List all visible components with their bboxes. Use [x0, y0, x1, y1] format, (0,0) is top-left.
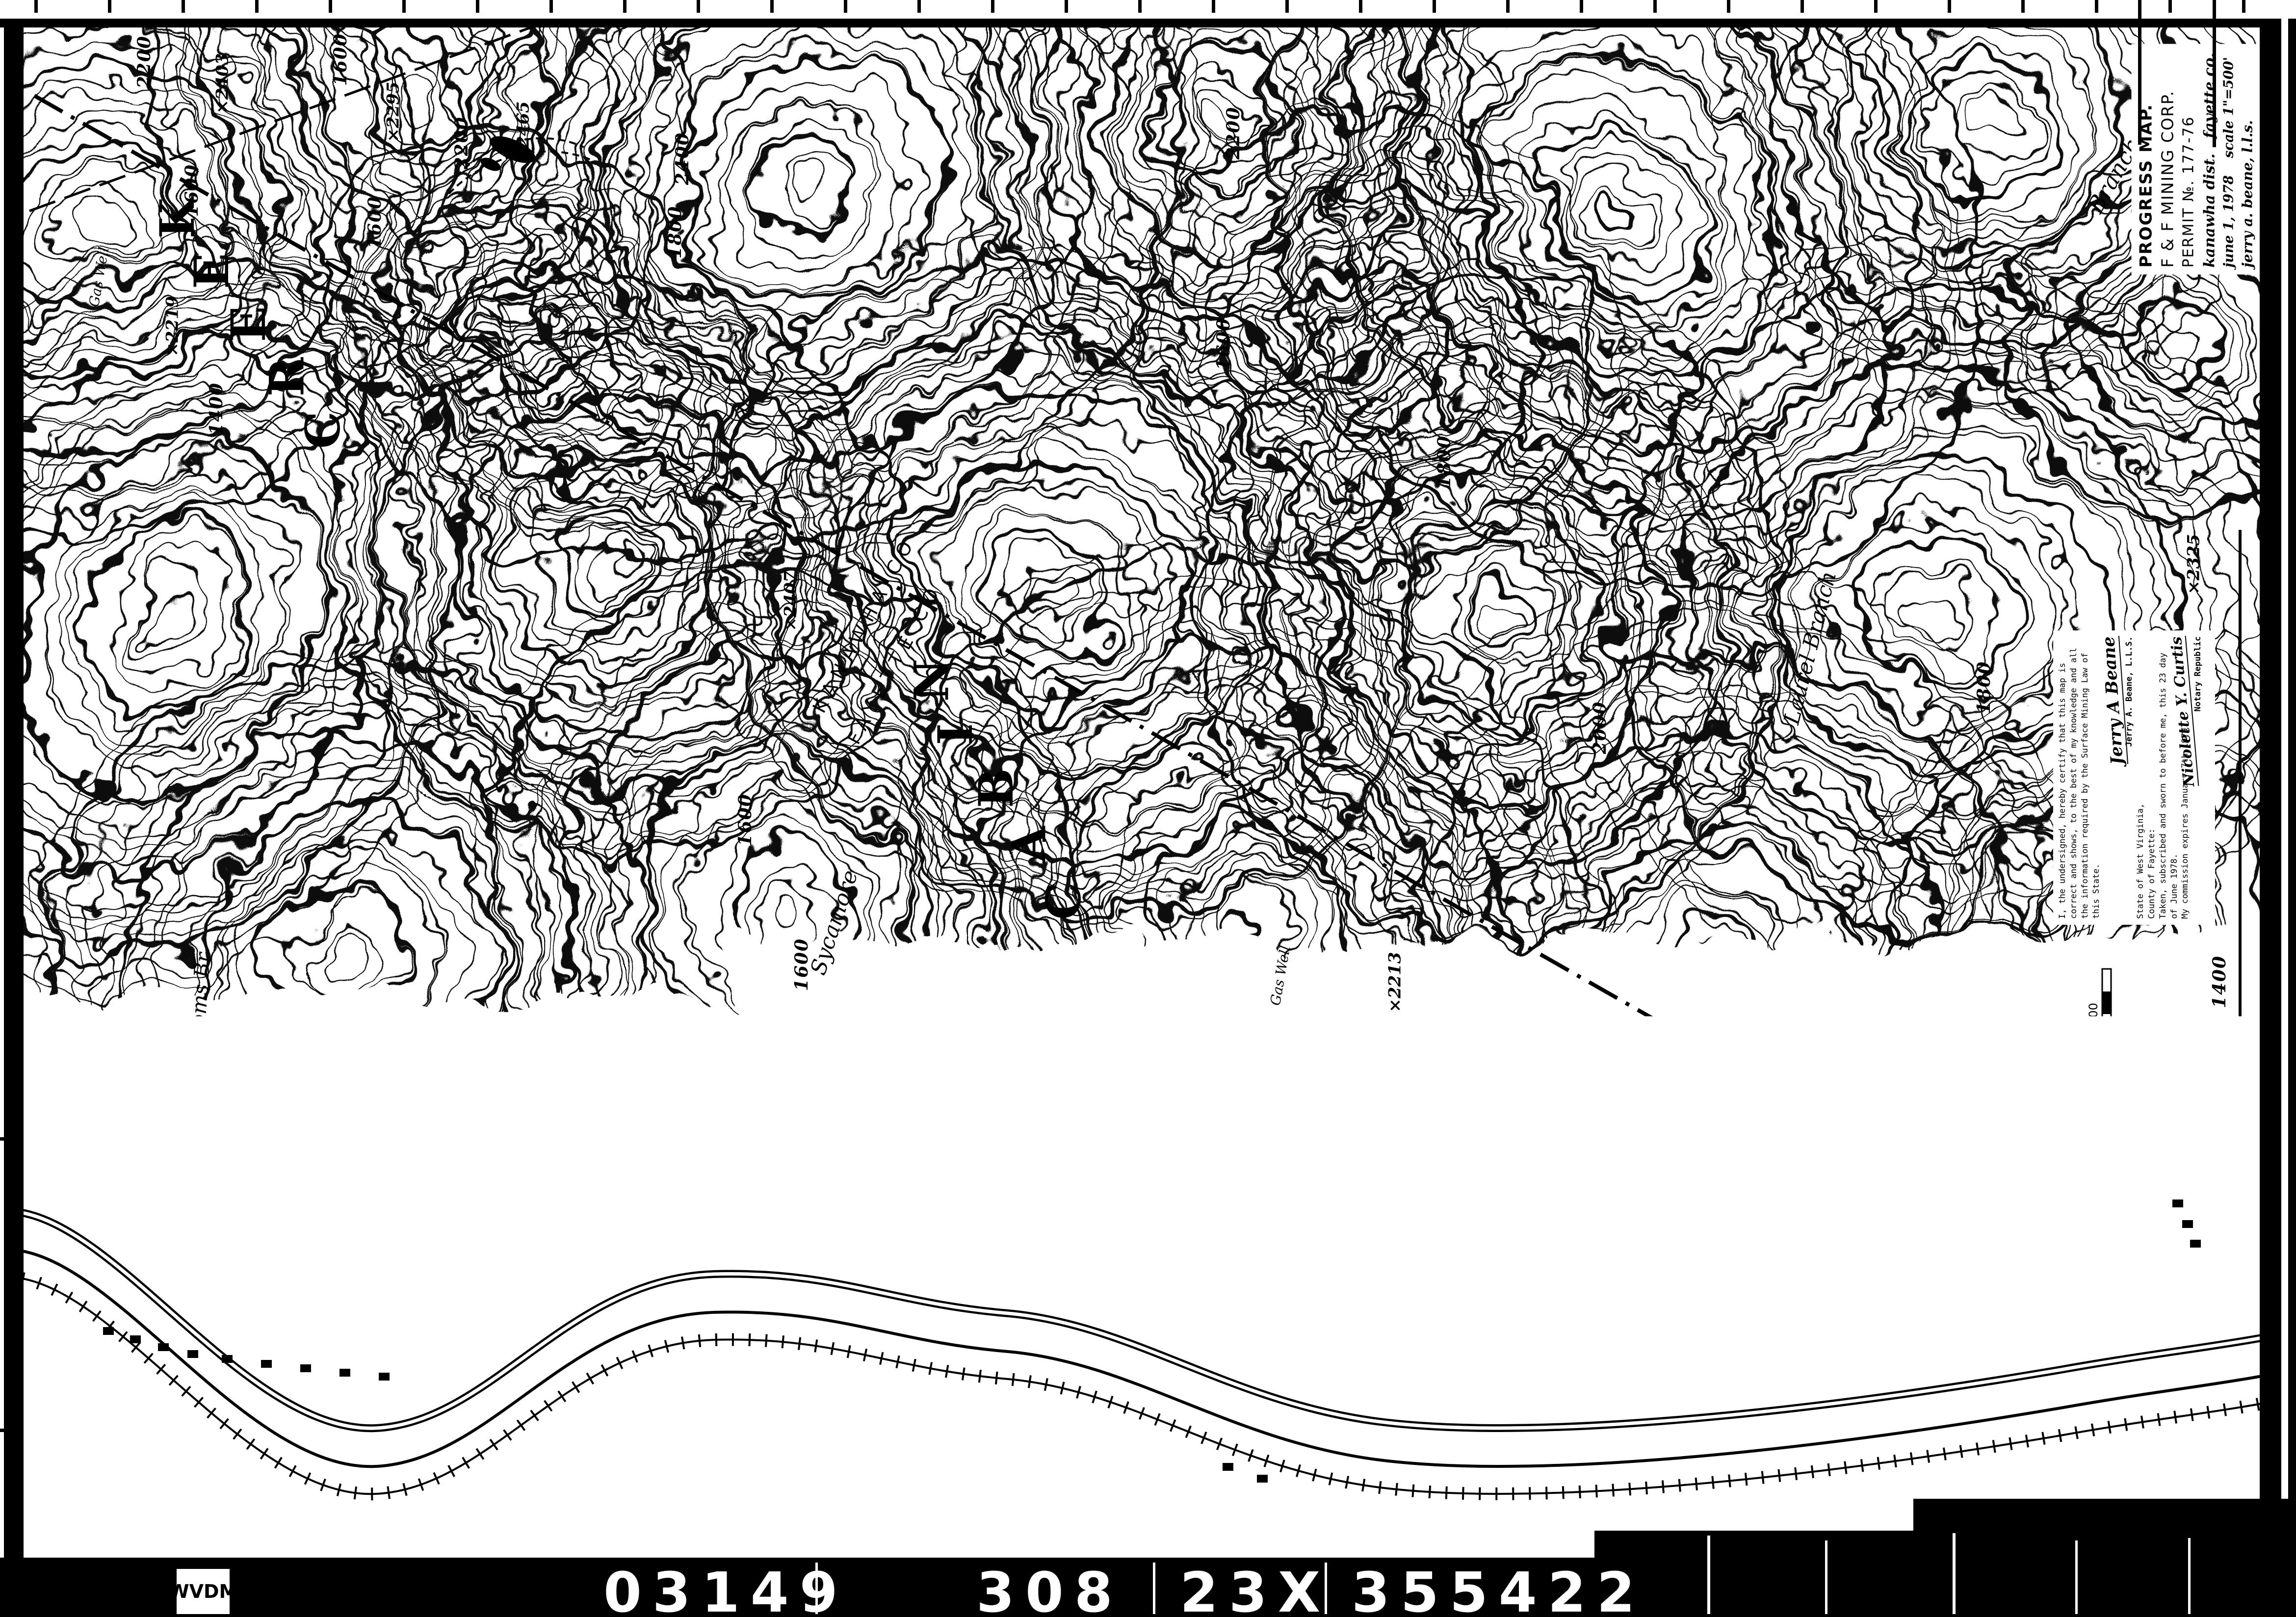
location-town-montgomery: Montgomery — [1388, 1363, 1398, 1412]
spot-elevation-value: 2213 — [1385, 952, 1405, 998]
spot-elevation: ×2295 — [384, 81, 403, 142]
district-name: kanawha dist. — [2201, 154, 2218, 268]
map-scale: scale 1"=500' — [2221, 57, 2237, 158]
contour-label: 2200 — [1223, 106, 1244, 159]
scale-bar-block: 0 500 1000 1500 Scale, feet — [2087, 954, 2133, 1212]
company-name: F & F MINING CORP. — [2158, 51, 2177, 268]
ruler-tick — [991, 0, 994, 13]
location-town-mahan: Mahan — [1469, 1327, 1478, 1351]
ruler-tick — [770, 0, 774, 13]
legend-row-value: 1.00 ac. — [1811, 1246, 1826, 1305]
contour-label: 1200 — [845, 1429, 866, 1482]
legend-row-value: 7.43 ac. — [1773, 1267, 1787, 1327]
ruler-tick — [1800, 0, 1804, 13]
notary-sworn-line: Taken, subscribed and sworn to before me… — [2158, 636, 2169, 919]
paint-creek-line — [1467, 1340, 1546, 1409]
ridge-name-letter: B — [968, 768, 1024, 808]
scale-tick-500: 500 — [2087, 1125, 2100, 1148]
contour-label: 1600 — [791, 938, 812, 991]
legend-row-value: 2080 lin.ft. — [1713, 1289, 1727, 1374]
film-edge-ruler — [0, 0, 2296, 19]
legend-row-value: 4.71 ac. — [1792, 1262, 1806, 1322]
spot-elevation-value: 2407 — [781, 571, 801, 617]
certification-text: I, the undersigned, hereby certify that … — [2057, 644, 2102, 919]
scan-shadow — [1913, 1499, 2296, 1533]
location-map-title: LOCATION MAP — [1324, 1338, 1355, 1571]
ridge-name-letter: E — [184, 253, 239, 289]
ridge-name-letter: C — [295, 411, 351, 448]
coal-line-symbol — [1700, 1351, 1705, 1388]
contour-label: 1600 — [182, 164, 202, 217]
legend-row-label: DISTURBED AREA TO 5-3-78 — [1773, 1367, 1787, 1552]
notary-state-line: State of West Virginia, — [2135, 636, 2146, 919]
permit-number: PERMIT №. 177-76 — [2180, 51, 2197, 268]
regraded-area-symbol — [1792, 1330, 1803, 1358]
legend-row-label: COAL — [1694, 1391, 1708, 1553]
certification-block: I, the undersigned, hereby certify that … — [2053, 630, 2215, 925]
benchmark-label: 802 — [53, 1397, 71, 1428]
quadrangle-note: Quadrangle — [1565, 1326, 1574, 1369]
ruler-tick — [623, 0, 626, 13]
film-scratch — [2075, 1540, 2078, 1614]
sheet-edge — [2281, 19, 2288, 1617]
contour-label: 1400 — [206, 382, 227, 435]
scanned-progress-map-sheet: C A B I N C R E E K KANAWHA CO FAYETTE C… — [0, 0, 2296, 1617]
contour-label: 1800 — [1434, 435, 1455, 488]
sheet-edge — [0, 27, 4, 1617]
film-edge — [2288, 19, 2296, 1617]
film-scratch — [2188, 1538, 2191, 1614]
spot-elevation-value: 2403 — [213, 53, 233, 100]
ruler-tick — [1580, 0, 1583, 13]
ruler-tick — [1359, 0, 1362, 13]
legend-row-drainage: DRAINAGE ⟶ Paint Creek — [1751, 1219, 1768, 1553]
surveyor-name: jerry a. beane, l.l.s. — [2240, 51, 2256, 268]
ruler-tick — [549, 0, 553, 13]
film-number-1: 03149 — [603, 1561, 849, 1617]
film-scratch — [1325, 1563, 1327, 1614]
contour-label: 2200 — [451, 116, 472, 169]
series-note: 7.5 Minute Series — [1351, 1280, 1359, 1344]
legend-seam-note: № 5 - Black Seam — [1653, 1241, 1669, 1376]
west-virginia-outline — [1512, 1284, 1570, 1340]
notary-title: Notary Republic — [2193, 636, 2203, 712]
ruler-tick — [1727, 0, 1730, 13]
ruler-tick — [2021, 0, 2025, 13]
spot-elevation-marker: × — [384, 128, 403, 142]
benchmark-label: 868 — [2155, 1167, 2172, 1198]
state-abbrev: W.VA. — [1528, 1289, 1536, 1307]
ruler-tick — [402, 0, 406, 13]
spot-elevation-value: 2325 — [2184, 534, 2204, 580]
ridge-name-letter: I — [928, 723, 983, 745]
legend-row-crop-line: CROP LINE 5000 Lin.ft. Proposed — [1675, 1219, 1689, 1553]
spot-elevation-value: 2219 — [163, 296, 183, 342]
ruler-tick — [844, 0, 847, 13]
spot-elevation-value: 2465 — [514, 101, 533, 148]
latitude-value: 38°03'15" — [1555, 1358, 1566, 1406]
film-scratch — [815, 1563, 818, 1614]
ruler-tick — [1433, 0, 1436, 13]
disturbed-area-header: DISTURBED AREA — [1832, 1337, 1860, 1435]
ruler-tick — [2242, 0, 2245, 13]
spot-elevation: ×2213 — [1385, 952, 1405, 1012]
film-scratch — [1953, 1533, 1956, 1614]
topographic-map-canvas — [0, 0, 2296, 1617]
edge-tick — [0, 1429, 22, 1432]
legend-row-disturbed-area: DISTURBED AREA TO 5-3-78 7.43 ac. — [1773, 1219, 1787, 1553]
contour-label: 1600 — [735, 793, 756, 846]
film-number-2: 308 — [976, 1561, 1123, 1617]
haul-road-symbol — [1816, 1423, 1822, 1451]
scan-shadow — [1594, 1531, 2296, 1560]
legend-row-haul-road: HAUL ROAD 800 l.f. incl'd above 1.00 ac. — [1811, 1219, 1826, 1553]
ruler-tick — [1874, 0, 1878, 13]
ridge-name-letter: R — [259, 358, 314, 397]
legend-row-label: CROP LINE — [1675, 1391, 1689, 1553]
ridge-name-letter: N — [904, 659, 959, 702]
legend-row-label: DRAINAGE — [1753, 1391, 1767, 1553]
registration-line — [2138, 0, 2141, 145]
title-block: PROGRESS MAP. F & F MINING CORP. PERMIT … — [2132, 44, 2262, 275]
ruler-tick — [1948, 0, 1951, 13]
legend-row-value: 3000 . lin. ft. — [1694, 1245, 1708, 1345]
legend-row-note: 800 l.f. incl'd above — [1815, 1314, 1825, 1415]
legend-tract-row: A EACC 7.43 4.71 — [1867, 1219, 1881, 1553]
film-footer-band — [0, 1558, 2296, 1617]
scale-tick-0: 0 — [2087, 1191, 2100, 1198]
notary-county-line: County of Fayette: — [2146, 636, 2158, 919]
contour-label: 2400 — [672, 132, 693, 185]
contour-label: 1000 — [298, 1117, 319, 1170]
contour-label: 2200 — [134, 35, 155, 88]
map-date: june 1, 1978 — [2221, 175, 2237, 267]
legend-row-acres-regraded: ACRES REGRADED TO 5-3-78 4.71 ac. — [1792, 1219, 1806, 1553]
contour-label: 1400 — [2209, 955, 2230, 1008]
film-number-3: 23X — [1180, 1561, 1331, 1617]
contour-interval-note: Contour Interval 40' — [1360, 1270, 1369, 1344]
owner-header: OWNER — [1832, 1435, 1860, 1499]
drainage-arrow-symbol: ⟶ — [1751, 1364, 1768, 1385]
latitude-label: 38°03'15" Lat. — [1555, 1338, 1566, 1406]
ruler-tick — [1138, 0, 1142, 13]
map-border-left — [4, 19, 24, 1617]
route-number: 11 — [664, 1360, 687, 1385]
legend-row-coal: COAL 3000 . lin. ft. — [1694, 1219, 1708, 1553]
spot-elevation-marker: × — [781, 617, 801, 631]
usgs-credit: U.S.G.S. — [1565, 1276, 1575, 1310]
spot-elevation: ×2325 — [2184, 534, 2204, 594]
regraded-area-value: 4.71 — [1867, 1239, 1881, 1337]
spot-elevation-marker: × — [213, 100, 233, 114]
disturbed-area-value: 7.43 — [1867, 1337, 1881, 1435]
edge-tick — [0, 1137, 22, 1141]
location-town-burnwell: Burnwell — [1491, 1336, 1500, 1368]
spot-elevation-marker: × — [2184, 580, 2204, 595]
legend-row-coal-removed: COAL REMOVED TO 5-3-78 2080 lin.ft. — [1713, 1219, 1727, 1553]
scale-tick-1500: 1500 — [2087, 1003, 2100, 1033]
contour-label: 1800 — [665, 206, 685, 259]
contour-label: 1600 — [365, 196, 385, 249]
spot-elevation: ×2403 — [213, 53, 233, 113]
contour-label: 1600 — [1213, 317, 1234, 370]
spot-elevation: ×2407 — [781, 571, 801, 631]
ridge-name-letter: A — [1001, 826, 1057, 862]
spot-elevation: ×2219 — [163, 296, 183, 356]
legend-block: LEGEND № 5 - Black Seam CROP LINE 5000 L… — [1644, 1214, 1852, 1558]
legend-title: LEGEND — [1646, 1396, 1670, 1499]
map-border-top — [0, 19, 2296, 27]
ruler-tick — [1285, 0, 1289, 13]
ruler-tick — [34, 0, 38, 13]
location-county-fayette: Fayette Co. — [1413, 1302, 1426, 1369]
legend-row-label: COAL REMOVED TO 5-3-78 — [1713, 1378, 1727, 1552]
owner-value: EACC — [1867, 1435, 1881, 1499]
ruler-tick — [697, 0, 700, 13]
spot-elevation-value: 2295 — [384, 81, 403, 128]
map-border-right — [2260, 19, 2281, 1617]
location-town-east-bank: East Bank — [1433, 1433, 1441, 1469]
legend-row-proposed-disturbed: PROPOSED DISTURBED AREA 36.00 ac. — [1732, 1219, 1747, 1553]
legend-row-label: ACRES REGRADED TO 5-3-78 — [1792, 1362, 1806, 1553]
ruler-tick — [2095, 0, 2098, 13]
location-map-block: LOCATION MAP KANAWHA CO. Fayette Co. Mon… — [1322, 1253, 1582, 1575]
film-agency-tag: WVDM — [177, 1569, 230, 1614]
legend-row-label: PROPOSED DISTURBED AREA — [1732, 1361, 1746, 1553]
spot-elevation: ×2465 — [514, 101, 533, 161]
ruler-tick — [1653, 0, 1657, 13]
legend-row-note: 5000 Lin.ft. Proposed — [1679, 1276, 1689, 1387]
contour-label: 2000 — [1590, 701, 1610, 754]
disturbed-area-symbol — [1773, 1335, 1784, 1363]
film-scratch — [1825, 1540, 1827, 1614]
ridge-name-letter: C — [1036, 882, 1092, 919]
ruler-tick — [917, 0, 921, 13]
ruler-tick — [182, 0, 185, 13]
legend-tract-table: TRACT OWNER DISTURBED AREA REGRADED AREA — [1832, 1219, 1860, 1553]
film-number-4: 355422 — [1352, 1561, 1646, 1617]
ruler-tick — [108, 0, 111, 13]
ruler-tick — [476, 0, 479, 13]
contour-label: 1600 — [330, 33, 351, 86]
ruler-tick — [329, 0, 332, 13]
ruler-tick — [255, 0, 259, 13]
ruler-tick — [1065, 0, 1068, 13]
latitude-suffix: Lat. — [1555, 1338, 1566, 1356]
film-scratch — [1153, 1563, 1155, 1614]
scale-bar-graphic — [2100, 957, 2118, 1212]
scale-tick-1000: 1000 — [2087, 1062, 2100, 1092]
film-scratch — [1707, 1536, 1710, 1614]
location-county-kanawha: KANAWHA CO. — [1469, 1422, 1482, 1516]
legend-row-value: 36.00 ac. — [1732, 1288, 1747, 1357]
spot-elevation-marker: × — [1385, 998, 1405, 1013]
location-map-drawing — [1355, 1257, 1580, 1571]
spot-elevation-marker: × — [163, 342, 183, 357]
legend-row-note: Paint Creek — [1753, 1273, 1767, 1356]
scale-bar-caption: Scale, feet — [2119, 1059, 2133, 1121]
contour-label: 1000 — [840, 1334, 861, 1387]
ridge-name-letter: E — [221, 306, 276, 342]
ruler-tick — [1506, 0, 1510, 13]
ruler-tick — [2168, 0, 2172, 13]
ruler-tick — [1212, 0, 1215, 13]
contour-label: 1800 — [1974, 661, 1994, 714]
regraded-area-header: REGRADED AREA — [1832, 1239, 1860, 1337]
spot-elevation-marker: × — [514, 148, 533, 162]
registration-line — [2213, 0, 2216, 147]
mine-location-marker — [1463, 1405, 1471, 1413]
